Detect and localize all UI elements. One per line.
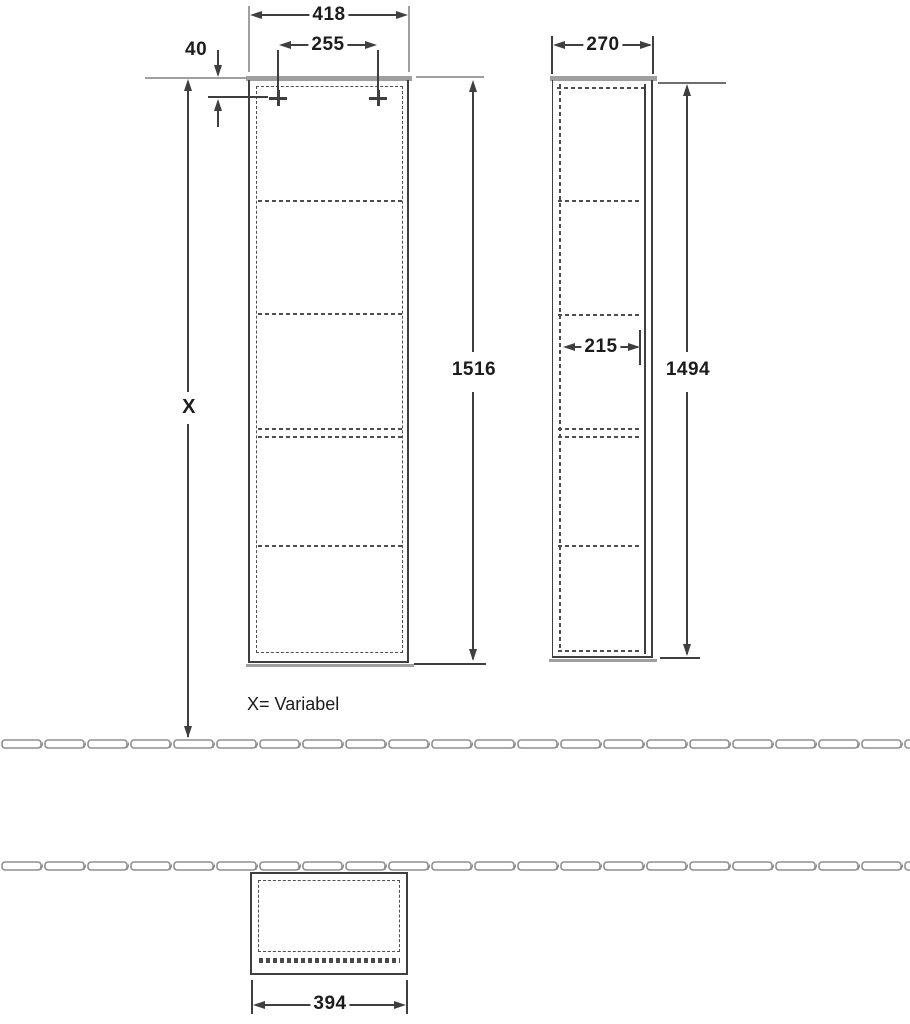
dim-1494-label: 1494 xyxy=(663,359,713,381)
dim-1516-label: 1516 xyxy=(449,359,499,381)
dim-1516-extension-top xyxy=(416,76,484,78)
dim-1516-arrow-up xyxy=(469,80,477,92)
dim-418-arrow-left xyxy=(250,11,262,19)
wall-hatch-upper xyxy=(0,737,910,751)
dim-40-arrow-down xyxy=(214,65,222,77)
note-variabel: X= Variabel xyxy=(247,694,339,715)
front-shelf-line xyxy=(258,313,402,315)
dim-1494-arrow-up xyxy=(683,84,691,96)
dim-270-extension-right xyxy=(652,36,654,74)
side-view-outline xyxy=(552,80,653,658)
front-shelf-line xyxy=(258,428,402,430)
mounting-cross-right xyxy=(377,90,380,106)
side-shelf-line xyxy=(558,428,642,430)
side-back-dashed-line xyxy=(559,84,561,650)
dim-1494-arrow-down xyxy=(683,644,691,656)
dim-255-arrow-right xyxy=(365,41,377,49)
dim-255-label: 255 xyxy=(308,34,347,56)
dim-40-label: 40 xyxy=(182,39,210,61)
side-shelf-line xyxy=(558,545,642,547)
dim-1494-line-lower xyxy=(686,392,688,654)
side-shelf-line xyxy=(558,200,642,202)
dim-215-label: 215 xyxy=(581,336,620,358)
dim-394-arrow-right xyxy=(394,1001,406,1009)
dim-255-extension-left xyxy=(277,50,279,92)
dim-x-line-upper xyxy=(187,82,189,392)
dim-215-arrow-left xyxy=(563,343,575,351)
dim-40-arrow-up xyxy=(214,99,222,111)
dim-1494-extension-bottom xyxy=(660,657,700,659)
dim-394-arrow-left xyxy=(253,1001,265,1009)
dim-215-arrow-right xyxy=(628,343,640,351)
dim-418-extension-right xyxy=(408,6,410,72)
dim-394-label: 394 xyxy=(310,993,349,1015)
dim-1494-extension-top xyxy=(658,82,726,84)
front-view-inner-outline xyxy=(256,86,403,653)
front-shelf-line xyxy=(258,545,402,547)
dim-1516-arrow-down xyxy=(469,649,477,661)
dim-1494-line-upper xyxy=(686,88,688,352)
front-view-bottom-shadow xyxy=(246,664,414,667)
wall-hatch-lower xyxy=(0,859,910,873)
dim-1516-line-upper xyxy=(472,84,474,352)
top-view-door-dashed-line xyxy=(259,958,400,963)
dim-40-tail-bottom xyxy=(217,111,219,127)
dim-418-arrow-right xyxy=(396,11,408,19)
side-shelf-line xyxy=(558,314,642,316)
side-shelf-line xyxy=(558,436,642,438)
side-bottom-dashed-line xyxy=(558,650,642,652)
front-top-extension-line xyxy=(145,77,247,79)
dim-255-extension-right xyxy=(377,50,379,92)
dim-x-line-lower xyxy=(187,424,189,737)
dim-270-arrow-left xyxy=(553,41,565,49)
side-door-edge-line xyxy=(644,84,646,654)
dim-40-tail-top xyxy=(217,50,219,66)
dim-x-arrow-up xyxy=(184,79,192,91)
mounting-level-line xyxy=(208,96,268,98)
dim-x-label: X xyxy=(179,396,199,418)
top-view-inner-outline xyxy=(258,880,400,952)
technical-drawing: 418 255 40 X 1516 270 215 xyxy=(0,0,910,1024)
front-shelf-line xyxy=(258,200,402,202)
dim-1516-extension-bottom xyxy=(414,663,486,665)
dim-1516-line-lower xyxy=(472,392,474,659)
dim-270-arrow-right xyxy=(640,41,652,49)
mounting-cross-left xyxy=(277,90,280,106)
dim-394-extension-right xyxy=(406,980,408,1014)
dim-418-label: 418 xyxy=(309,4,348,26)
dim-255-arrow-left xyxy=(279,41,291,49)
side-top-dashed-line xyxy=(557,87,647,89)
side-view-bottom-shadow xyxy=(549,659,657,662)
dim-270-label: 270 xyxy=(583,34,622,56)
front-shelf-line xyxy=(258,436,402,438)
